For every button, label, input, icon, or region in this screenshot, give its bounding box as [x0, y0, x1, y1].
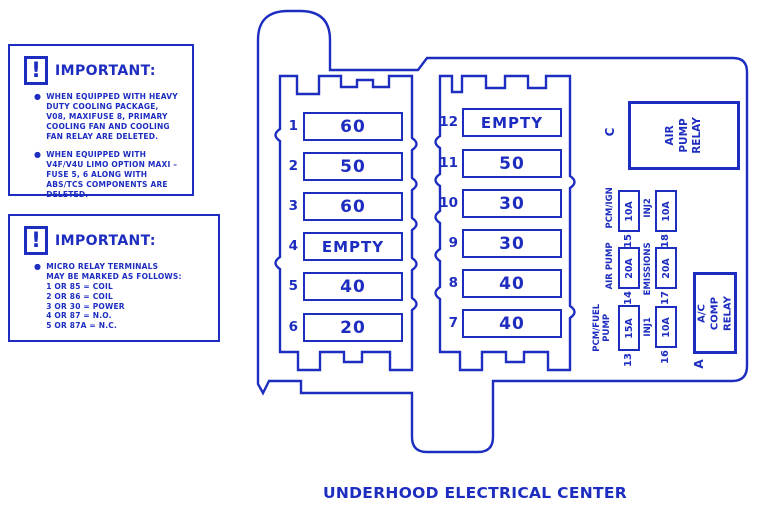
fuse-8-number: 8 [432, 269, 458, 298]
fuse-11: 50 [462, 149, 562, 178]
note-1-bullet-1-text: WHEN EQUIPPED WITH HEAVY DUTY COOLING PA… [46, 92, 178, 141]
air-pump-relay: AIR PUMP RELAY [628, 101, 740, 170]
fuse-10: 30 [462, 189, 562, 218]
fuse-12: EMPTY [462, 108, 562, 137]
important-note-2-header: ! IMPORTANT: [24, 226, 210, 255]
ac-comp-relay: A/C COMP RELAY [693, 272, 737, 354]
fuse-5: 40 [303, 272, 403, 301]
fuse-16-number: 16 [660, 347, 672, 367]
note-1-bullet-1: ● WHEN EQUIPPED WITH HEAVY DUTY COOLING … [34, 92, 184, 141]
fuse-16-value: 10A [661, 317, 672, 338]
fuse-8: 40 [462, 269, 562, 298]
fuse-9: 30 [462, 229, 562, 258]
fuse-11-number: 11 [432, 149, 458, 178]
important-note-1: ! IMPORTANT: ● WHEN EQUIPPED WITH HEAVY … [8, 44, 194, 196]
fuse-17-number: 17 [660, 288, 672, 308]
fuse-1: 60 [303, 112, 403, 141]
note-1-bullet-2-text: WHEN EQUIPPED WITH V4F/V4U LIMO OPTION M… [46, 150, 177, 199]
fuse-10-number: 10 [432, 189, 458, 218]
important-note-1-title: IMPORTANT: [55, 63, 156, 79]
fuse-14-value: 20A [624, 258, 635, 279]
bullet-icon: ● [34, 150, 41, 199]
fuse-15: 10A [618, 190, 640, 232]
relay-slot-a-label: A [691, 356, 707, 372]
fuse-16: 10A [655, 306, 677, 348]
fuse-13-value: 15A [624, 318, 635, 339]
fuse-13: 15A [618, 305, 640, 351]
fuse-2-number: 2 [272, 152, 298, 181]
exclamation-icon: ! [24, 56, 48, 85]
fuse-17: 20A [655, 247, 677, 289]
fuse-3: 60 [303, 192, 403, 221]
bullet-icon: ● [34, 262, 41, 331]
fuse-5-number: 5 [272, 272, 298, 301]
note-2-bullet-1: ● MICRO RELAY TERMINALS MAY BE MARKED AS… [34, 262, 210, 331]
fuse-7-number: 7 [432, 309, 458, 338]
important-note-2-title: IMPORTANT: [55, 233, 156, 249]
fuse-6: 20 [303, 313, 403, 342]
fuse-15-value: 10A [624, 201, 635, 222]
fuse-3-number: 3 [272, 192, 298, 221]
note-1-bullet-2: ● WHEN EQUIPPED WITH V4F/V4U LIMO OPTION… [34, 150, 184, 199]
fuse-4: EMPTY [303, 232, 403, 261]
bullet-icon: ● [34, 92, 41, 141]
exclamation-icon: ! [24, 226, 48, 255]
fuse-18: 10A [655, 190, 677, 232]
fuse-18-value: 10A [661, 201, 672, 222]
fuse-7: 40 [462, 309, 562, 338]
fuse-2: 50 [303, 152, 403, 181]
air-pump-relay-label: AIR PUMP RELAY [664, 117, 705, 154]
diagram-title: UNDERHOOD ELECTRICAL CENTER [260, 484, 690, 502]
fuse-9-number: 9 [432, 229, 458, 258]
fuse-12-number: 12 [432, 108, 458, 137]
fuse-4-number: 4 [272, 232, 298, 261]
note-2-bullet-1-text: MICRO RELAY TERMINALS MAY BE MARKED AS F… [46, 262, 182, 331]
important-note-2: ! IMPORTANT: ● MICRO RELAY TERMINALS MAY… [8, 214, 220, 342]
underhood-electrical-center-diagram: ! IMPORTANT: ● WHEN EQUIPPED WITH HEAVY … [0, 0, 768, 507]
fuse-16-label: INJ1 [644, 282, 654, 372]
fuse-13-label: PCM/FUEL PUMP [593, 283, 613, 373]
fuse-17-value: 20A [661, 258, 672, 279]
ac-comp-relay-label: A/C COMP RELAY [696, 294, 735, 332]
fuse-1-number: 1 [272, 112, 298, 141]
important-note-1-header: ! IMPORTANT: [24, 56, 184, 85]
fuse-14: 20A [618, 247, 640, 289]
relay-slot-c-label: C [602, 124, 618, 140]
fuse-6-number: 6 [272, 313, 298, 342]
fuse-13-number: 13 [623, 350, 635, 370]
